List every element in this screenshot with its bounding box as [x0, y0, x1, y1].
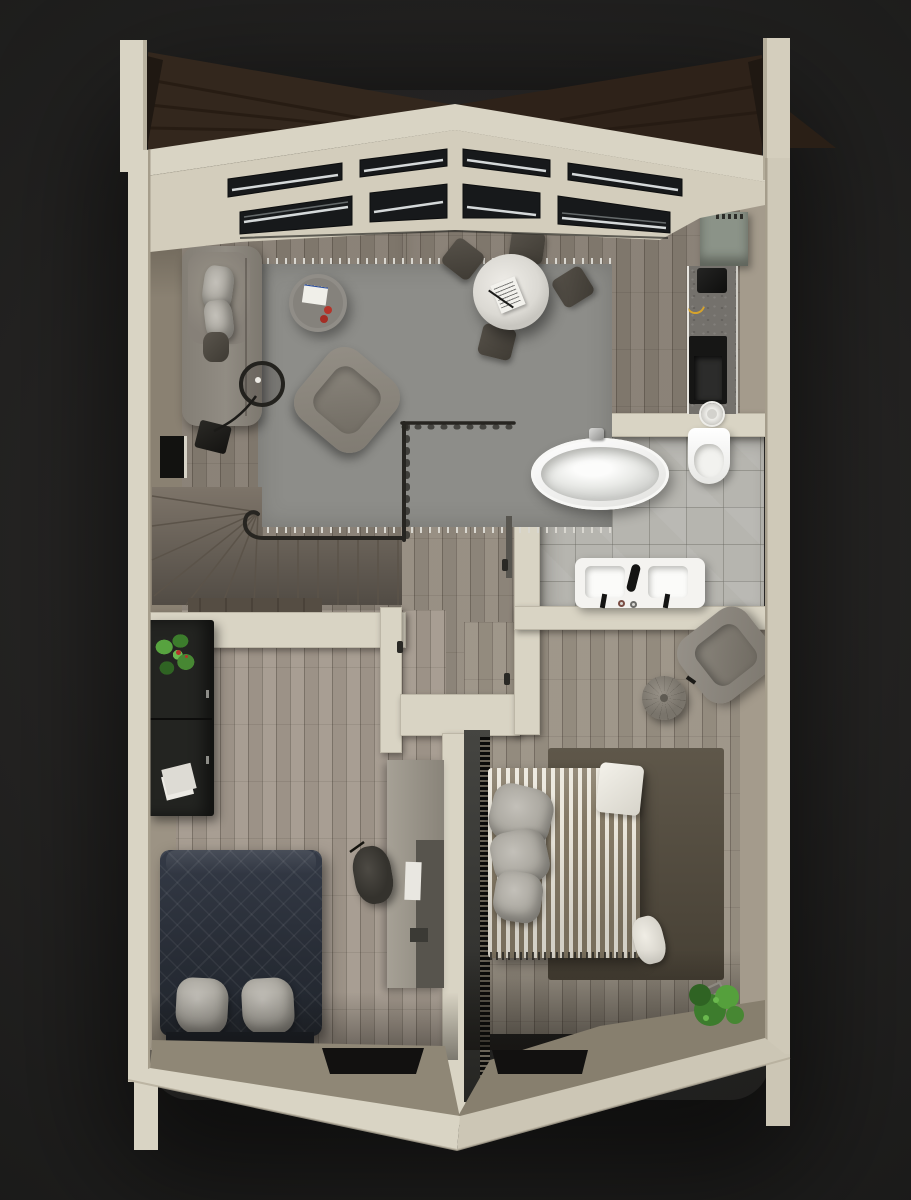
bed-dark-top-fold: [166, 850, 316, 874]
wall-hall-south: [400, 694, 520, 736]
floor-plan-render: [0, 0, 911, 1200]
tub-faucet: [589, 428, 604, 440]
red-cup-2: [320, 315, 328, 323]
toilet-seat: [694, 444, 724, 478]
wall-hall-west: [380, 607, 402, 753]
wall-bedroom-divider: [442, 733, 466, 1125]
left-wall-inner-face: [150, 178, 182, 612]
coffee-table-book: [302, 284, 328, 305]
sofa-pillow-dark: [203, 332, 229, 362]
left-wall-window-sill: [184, 436, 187, 478]
desk-laptop: [410, 928, 428, 942]
left-wall-window: [160, 436, 184, 478]
red-cup-1: [324, 306, 332, 314]
kitchen-cabinet-sage: [700, 212, 748, 266]
sideboard-handle-2: [206, 756, 209, 764]
kitchen-sink: [701, 403, 723, 425]
sideboard-divider: [150, 718, 212, 720]
bathtub-basin: [541, 447, 659, 501]
kitchen-cabinet-vent: [716, 214, 744, 219]
vanity-knob-2: [630, 601, 637, 608]
rug-fringe-bottom: [258, 527, 612, 533]
door-handle-bedroom-right: [504, 673, 510, 685]
door-handle-bedroom-left: [397, 641, 403, 653]
coffee-machine: [697, 268, 727, 293]
pouf-button: [660, 694, 668, 702]
vanity-knob-1: [618, 600, 625, 607]
bedroom-right-shadow: [464, 950, 740, 1050]
outer-wall-left: [128, 150, 150, 1082]
roof-wood-sliver-right: [790, 112, 836, 148]
bed-striped-sheet-fold: [596, 762, 645, 816]
desk-paper: [404, 862, 421, 901]
floor-lamp-shade: [239, 361, 285, 407]
sideboard-handle-1: [206, 690, 209, 698]
door-handle-bathroom: [502, 559, 508, 571]
floor-lamp-bulb: [255, 377, 261, 383]
plant-on-sideboard: [148, 626, 202, 686]
bedroom-left-shadow: [152, 992, 458, 1060]
cooktop-inner: [694, 356, 722, 400]
plant-berries: [176, 650, 181, 655]
